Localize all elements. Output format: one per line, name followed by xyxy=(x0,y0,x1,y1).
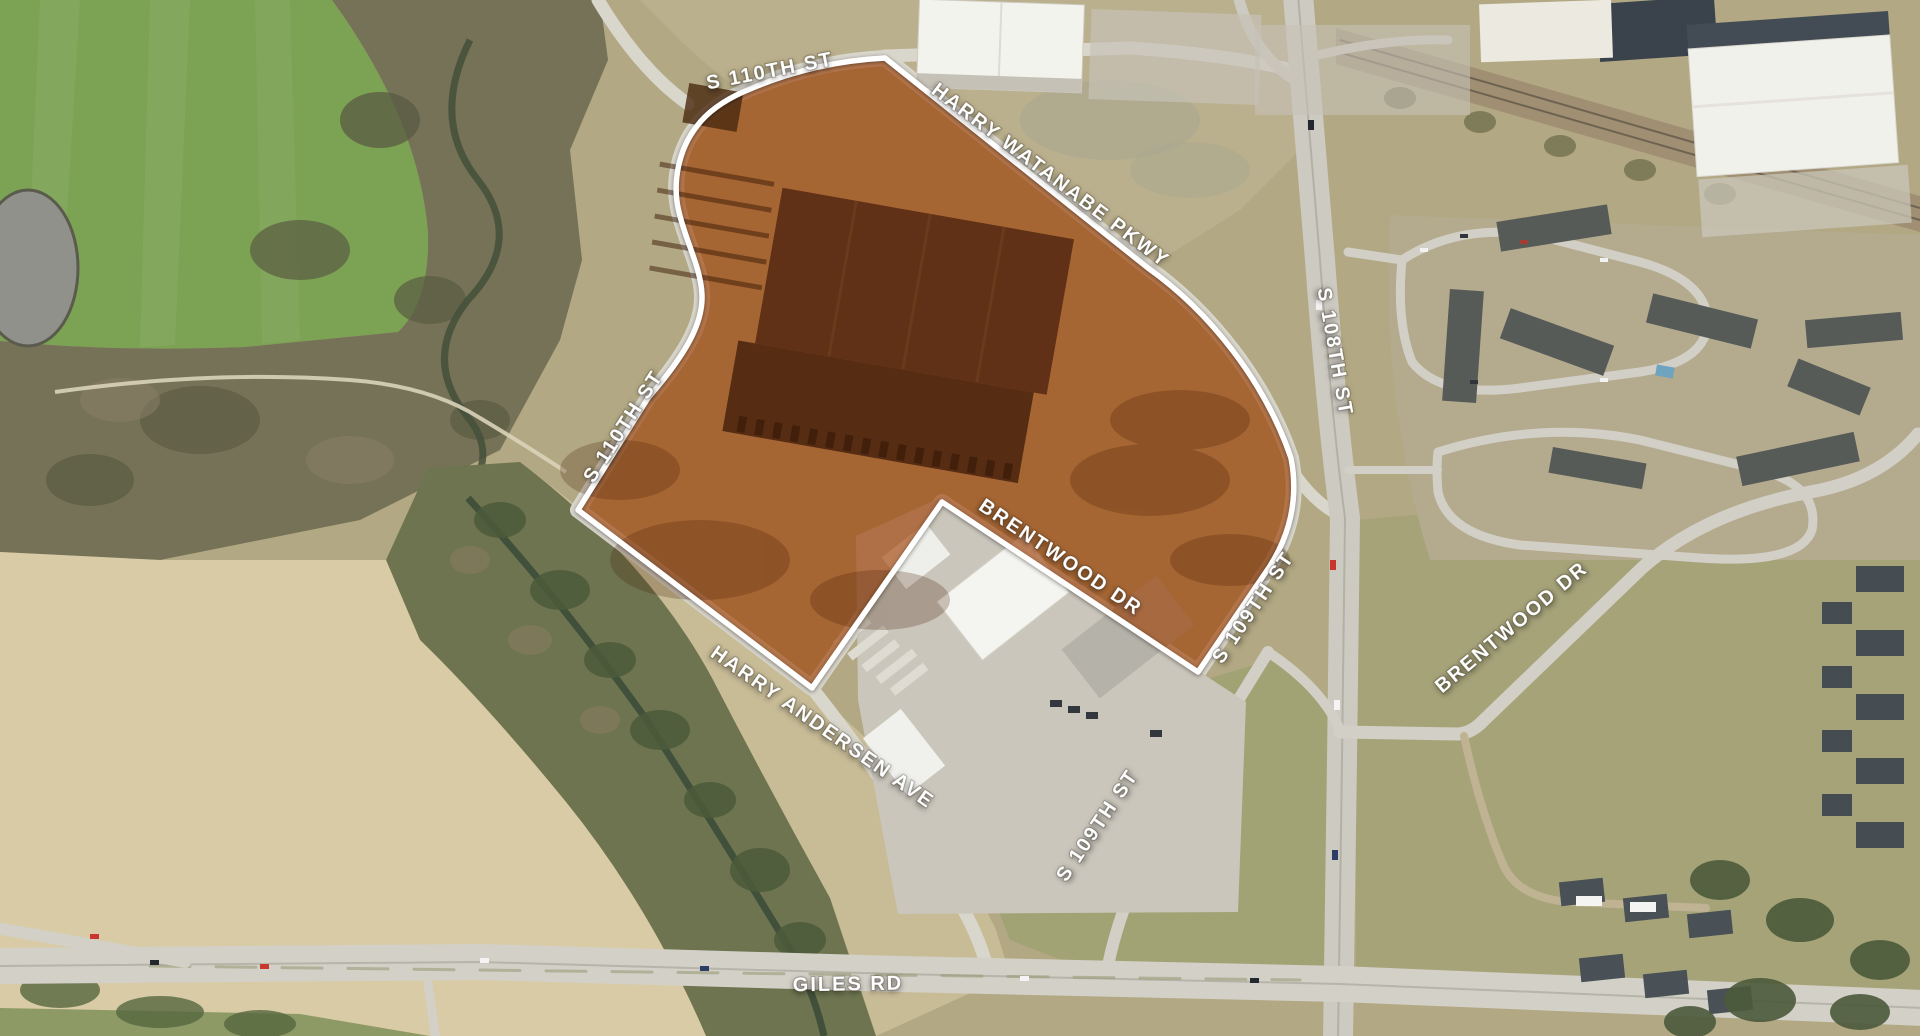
aerial-site-map: S 110TH STHARRY WATANABE PKWYS 110TH STS… xyxy=(0,0,1920,1036)
parking-lot xyxy=(1255,25,1470,115)
parking-lot xyxy=(1088,9,1261,105)
warehouse-ne xyxy=(1687,11,1899,177)
white-building-top xyxy=(1479,0,1613,62)
site-map-svg: S 110TH STHARRY WATANABE PKWYS 110TH STS… xyxy=(0,0,1920,1036)
truck xyxy=(1576,896,1602,906)
street-label-giles-rd: GILES RD xyxy=(793,972,904,996)
truck xyxy=(1630,902,1656,912)
